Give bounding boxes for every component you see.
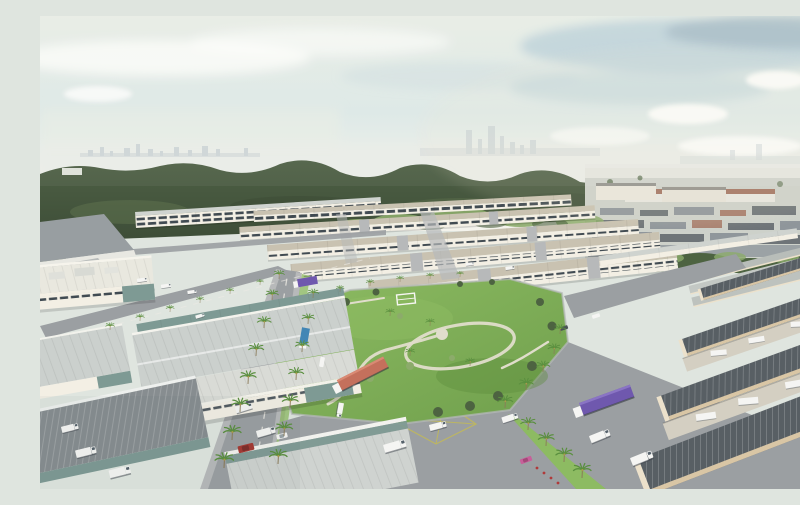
- parked-trailer: [791, 321, 800, 328]
- white-car: [592, 313, 601, 319]
- box-truck: [161, 283, 171, 289]
- palm-tree: [166, 305, 174, 312]
- palm-tree: [226, 288, 233, 294]
- plaza: [436, 328, 448, 340]
- render-canvas: Aerial rendering of an industrial park d…: [40, 16, 800, 489]
- industrial-park-aerial-render: Aerial rendering of an industrial park d…: [40, 16, 800, 489]
- palm-tree: [196, 297, 204, 303]
